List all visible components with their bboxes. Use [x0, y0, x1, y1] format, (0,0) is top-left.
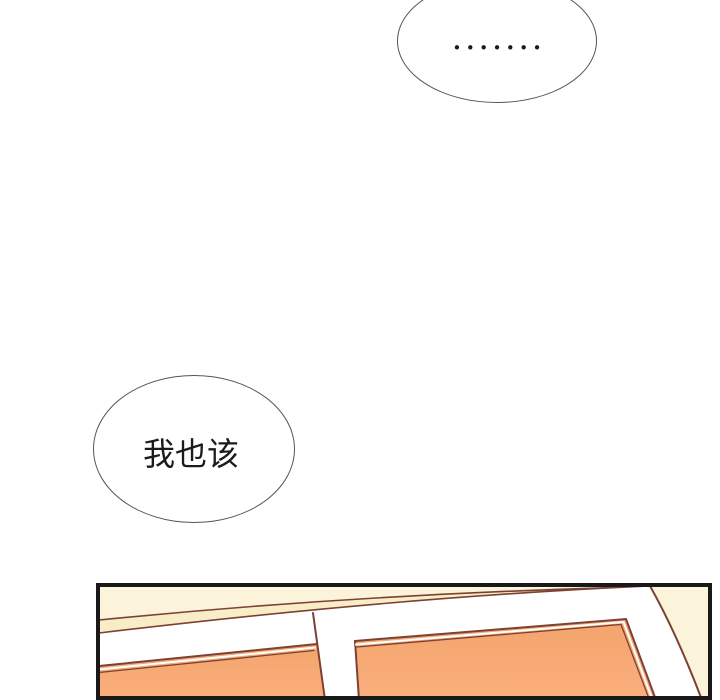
speech-bubble-thought: 我也该	[93, 375, 295, 523]
comic-panel	[95, 583, 715, 700]
speech-bubble-ellipsis: •••••••	[397, 0, 597, 103]
speech-text: 我也该	[143, 429, 239, 475]
ellipsis-text: •••••••	[448, 39, 546, 57]
